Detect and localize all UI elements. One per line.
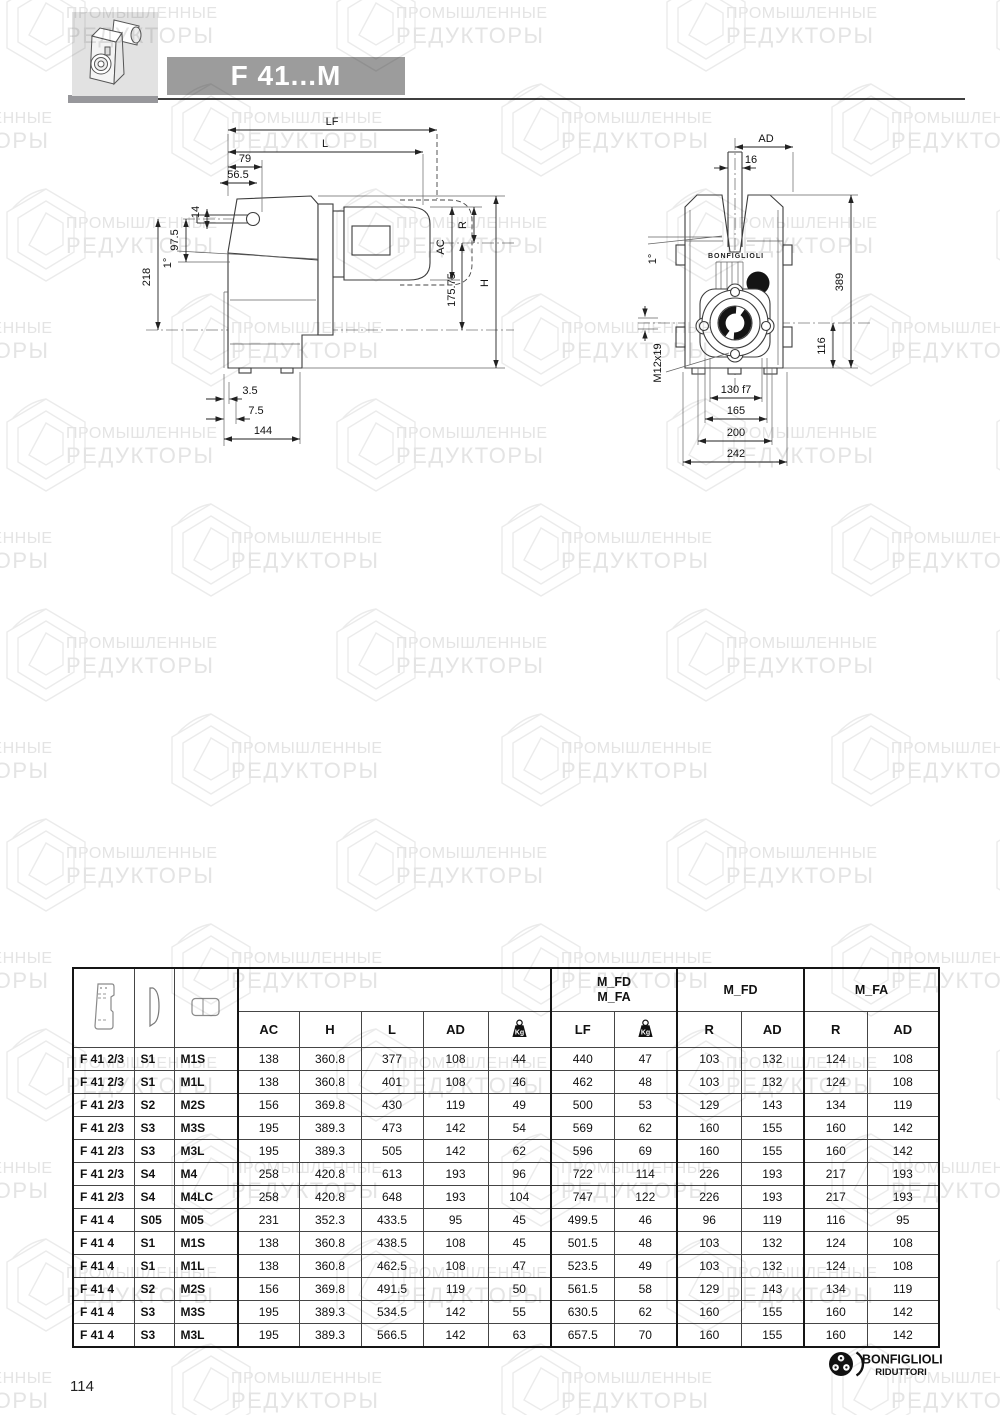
table-header-groups: M_FD M_FA M_FD M_FA bbox=[73, 968, 939, 1012]
cell-h: 420.8 bbox=[299, 1186, 361, 1209]
table-row: F 41 4S05M05231352.3433.59545499.5469611… bbox=[73, 1209, 939, 1232]
watermark: ПРОМЫШЛЕННЫЕРЕДУКТОРЫ bbox=[990, 605, 1000, 705]
table-row: F 41 2/3S1M1L138360.84011084646248103132… bbox=[73, 1071, 939, 1094]
cell-model: F 41 2/3 bbox=[73, 1186, 134, 1209]
dim-130f7: 130 f7 bbox=[721, 384, 752, 396]
cell-lf: 657.5 bbox=[551, 1324, 614, 1348]
dim-144: 144 bbox=[254, 425, 272, 437]
cell-ac: 138 bbox=[238, 1071, 299, 1094]
cell-m: M1S bbox=[174, 1048, 238, 1071]
table-row: F 41 2/3S3M3S195389.34731425456962160155… bbox=[73, 1117, 939, 1140]
watermark-hex-icon bbox=[990, 816, 1000, 914]
cell-h: 389.3 bbox=[299, 1117, 361, 1140]
cell-ad_fd: 155 bbox=[741, 1324, 804, 1348]
spec-table-container: M_FD M_FA M_FD M_FA AC H L AD bbox=[72, 967, 940, 1348]
watermark: ПРОМЫШЛЕННЫЕРЕДУКТОРЫ bbox=[660, 0, 980, 75]
dim-ac: AC bbox=[435, 239, 447, 254]
bonfiglioli-logo: BONFIGLIOLI RIDUTTORI bbox=[824, 1346, 949, 1382]
body-brand-text: BONFIGLIOLI bbox=[708, 253, 764, 260]
watermark-text: ПРОМЫШЛЕННЫЕРЕДУКТОРЫ bbox=[396, 841, 548, 889]
watermark-text: ПРОМЫШЛЕННЫЕРЕДУКТОРЫ bbox=[561, 736, 713, 784]
col-header-ad-fa: AD bbox=[867, 1012, 939, 1048]
cell-ad_fd: 193 bbox=[741, 1186, 804, 1209]
watermark-hex-icon bbox=[165, 501, 257, 599]
cell-r_fd: 103 bbox=[677, 1232, 741, 1255]
cell-ad: 95 bbox=[423, 1209, 488, 1232]
cell-kg2: 48 bbox=[614, 1071, 677, 1094]
cell-lf: 501.5 bbox=[551, 1232, 614, 1255]
cell-l: 377 bbox=[361, 1048, 423, 1071]
cell-s: S05 bbox=[134, 1209, 174, 1232]
cell-ad_fa: 193 bbox=[867, 1186, 939, 1209]
dim-3-5: 3.5 bbox=[242, 385, 257, 397]
table-row: F 41 4S3M3L195389.3566.514263657.5701601… bbox=[73, 1324, 939, 1348]
cell-kg: 45 bbox=[488, 1232, 551, 1255]
dim-218: 218 bbox=[141, 268, 153, 286]
cell-kg: 63 bbox=[488, 1324, 551, 1348]
watermark-text: ПРОМЫШЛЕННЫЕРЕДУКТОРЫ bbox=[231, 736, 383, 784]
cell-ad_fa: 142 bbox=[867, 1301, 939, 1324]
cell-ad_fd: 155 bbox=[741, 1301, 804, 1324]
cell-lf: 440 bbox=[551, 1048, 614, 1071]
watermark-hex-icon bbox=[0, 396, 92, 494]
page-title-text: F 41...M bbox=[231, 60, 342, 91]
col-header-r-fd: R bbox=[677, 1012, 741, 1048]
cell-s: S1 bbox=[134, 1232, 174, 1255]
cell-kg2: 69 bbox=[614, 1140, 677, 1163]
cell-r_fd: 226 bbox=[677, 1186, 741, 1209]
table-row: F 41 2/3S1M1S138360.83771084444047103132… bbox=[73, 1048, 939, 1071]
logo-brand-subtext: RIDUTTORI bbox=[875, 1367, 927, 1378]
cell-ac: 156 bbox=[238, 1094, 299, 1117]
watermark-text: ПРОМЫШЛЕННЫЕРЕДУКТОРЫ bbox=[66, 631, 218, 679]
watermark-text: ПРОМЫШЛЕННЫЕРЕДУКТОРЫ bbox=[0, 1366, 53, 1414]
watermark: ПРОМЫШЛЕННЫЕРЕДУКТОРЫ bbox=[0, 815, 320, 915]
cell-m: M2S bbox=[174, 1094, 238, 1117]
watermark: ПРОМЫШЛЕННЫЕРЕДУКТОРЫ bbox=[495, 710, 815, 810]
dim-m12x19: M12x19 bbox=[652, 343, 664, 382]
cell-ad_fa: 108 bbox=[867, 1048, 939, 1071]
cell-ad_fd: 132 bbox=[741, 1255, 804, 1278]
cell-h: 389.3 bbox=[299, 1301, 361, 1324]
group-label-mfa: M_FA bbox=[552, 990, 676, 1005]
cell-ad: 108 bbox=[423, 1071, 488, 1094]
watermark: ПРОМЫШЛЕННЫЕРЕДУКТОРЫ bbox=[990, 185, 1000, 285]
cell-h: 360.8 bbox=[299, 1071, 361, 1094]
watermark-hex-icon bbox=[990, 0, 1000, 74]
cell-kg: 55 bbox=[488, 1301, 551, 1324]
cell-l: 473 bbox=[361, 1117, 423, 1140]
watermark-text: ПРОМЫШЛЕННЫЕРЕДУКТОРЫ bbox=[0, 1156, 53, 1204]
spec-table-body: F 41 2/3S1M1S138360.83771084444047103132… bbox=[73, 1048, 939, 1348]
dim-389: 389 bbox=[834, 273, 846, 291]
cell-r_fd: 129 bbox=[677, 1278, 741, 1301]
cell-s: S1 bbox=[134, 1255, 174, 1278]
cell-ad_fd: 155 bbox=[741, 1140, 804, 1163]
cell-ad_fd: 143 bbox=[741, 1094, 804, 1117]
cell-ad: 119 bbox=[423, 1278, 488, 1301]
cell-m: M3S bbox=[174, 1117, 238, 1140]
col-header-kg: Kg bbox=[488, 1012, 551, 1048]
col-header-l: L bbox=[361, 1012, 423, 1048]
cell-l: 430 bbox=[361, 1094, 423, 1117]
watermark-text: ПРОМЫШЛЕННЫЕРЕДУКТОРЫ bbox=[726, 1, 878, 49]
cell-ac: 195 bbox=[238, 1117, 299, 1140]
cell-ac: 258 bbox=[238, 1163, 299, 1186]
output-shaft-icon bbox=[146, 986, 162, 1028]
cell-kg: 104 bbox=[488, 1186, 551, 1209]
dim-56-5: 56.5 bbox=[227, 169, 248, 181]
cell-lf: 523.5 bbox=[551, 1255, 614, 1278]
cell-l: 613 bbox=[361, 1163, 423, 1186]
cell-ad: 108 bbox=[423, 1048, 488, 1071]
dim-200: 200 bbox=[727, 427, 745, 439]
gearbox-thumbnail bbox=[72, 12, 158, 96]
cell-s: S4 bbox=[134, 1186, 174, 1209]
cell-r_fa: 124 bbox=[804, 1071, 867, 1094]
cell-lf: 630.5 bbox=[551, 1301, 614, 1324]
cell-ad_fd: 143 bbox=[741, 1278, 804, 1301]
header-group-mfa: M_FA bbox=[804, 968, 939, 1012]
dim-lf: LF bbox=[326, 116, 339, 128]
dim-7-5: 7.5 bbox=[248, 405, 263, 417]
watermark-hex-icon bbox=[0, 606, 92, 704]
cell-ad: 142 bbox=[423, 1324, 488, 1348]
cell-kg: 46 bbox=[488, 1071, 551, 1094]
cell-l: 534.5 bbox=[361, 1301, 423, 1324]
watermark-text: ПРОМЫШЛЕННЫЕРЕДУКТОРЫ bbox=[726, 841, 878, 889]
cell-ad: 108 bbox=[423, 1232, 488, 1255]
cell-r_fd: 96 bbox=[677, 1209, 741, 1232]
watermark-text: ПРОМЫШЛЕННЫЕРЕДУКТОРЫ bbox=[231, 526, 383, 574]
front-view-drawing: BONFIGLIOLI AD bbox=[615, 110, 980, 475]
dim-angle: 1° bbox=[647, 254, 659, 265]
watermark-text: ПРОМЫШЛЕННЫЕРЕДУКТОРЫ bbox=[891, 526, 1000, 574]
cell-kg: 54 bbox=[488, 1117, 551, 1140]
cell-ad_fa: 142 bbox=[867, 1140, 939, 1163]
cell-kg2: 114 bbox=[614, 1163, 677, 1186]
dim-angle: 1° bbox=[162, 258, 174, 269]
cell-lf: 596 bbox=[551, 1140, 614, 1163]
cell-kg2: 47 bbox=[614, 1048, 677, 1071]
gearbox-body bbox=[177, 134, 472, 373]
gearbox-column-icon bbox=[73, 968, 134, 1048]
cell-l: 462.5 bbox=[361, 1255, 423, 1278]
watermark-hex-icon bbox=[165, 1341, 257, 1415]
cell-m: M1L bbox=[174, 1255, 238, 1278]
watermark: ПРОМЫШЛЕННЫЕРЕДУКТОРЫ bbox=[990, 1025, 1000, 1125]
header-icon-bar bbox=[68, 95, 158, 103]
cell-kg2: 58 bbox=[614, 1278, 677, 1301]
cell-model: F 41 2/3 bbox=[73, 1117, 134, 1140]
cell-kg2: 46 bbox=[614, 1209, 677, 1232]
cell-h: 360.8 bbox=[299, 1048, 361, 1071]
cell-ad_fd: 132 bbox=[741, 1071, 804, 1094]
table-row: F 41 4S1M1L138360.8462.510847523.5491031… bbox=[73, 1255, 939, 1278]
cell-r_fa: 160 bbox=[804, 1117, 867, 1140]
watermark: ПРОМЫШЛЕННЫЕРЕДУКТОРЫ bbox=[825, 500, 1000, 600]
watermark-hex-icon bbox=[495, 501, 587, 599]
watermark-text: ПРОМЫШЛЕННЫЕРЕДУКТОРЫ bbox=[0, 106, 53, 154]
col-header-ad-fd: AD bbox=[741, 1012, 804, 1048]
watermark: ПРОМЫШЛЕННЫЕРЕДУКТОРЫ bbox=[0, 605, 320, 705]
table-row: F 41 2/3S4M4258420.861319396722114226193… bbox=[73, 1163, 939, 1186]
cell-r_fd: 103 bbox=[677, 1048, 741, 1071]
cell-ac: 231 bbox=[238, 1209, 299, 1232]
cell-m: M2S bbox=[174, 1278, 238, 1301]
watermark-text: ПРОМЫШЛЕННЫЕРЕДУКТОРЫ bbox=[891, 736, 1000, 784]
col-header-kg2: Kg bbox=[614, 1012, 677, 1048]
watermark-hex-icon bbox=[495, 711, 587, 809]
cell-ad_fd: 193 bbox=[741, 1163, 804, 1186]
side-view-drawing: LF L 79 56.5 14 97.5 218 1° 3.5 7.5 144 … bbox=[140, 105, 545, 450]
dim-l: L bbox=[322, 138, 328, 150]
watermark-hex-icon bbox=[990, 606, 1000, 704]
cell-ad_fd: 132 bbox=[741, 1048, 804, 1071]
cell-s: S3 bbox=[134, 1117, 174, 1140]
cell-kg: 49 bbox=[488, 1094, 551, 1117]
cell-r_fa: 217 bbox=[804, 1163, 867, 1186]
cell-m: M1L bbox=[174, 1071, 238, 1094]
cell-l: 648 bbox=[361, 1186, 423, 1209]
cell-s: S3 bbox=[134, 1324, 174, 1348]
cell-ac: 138 bbox=[238, 1255, 299, 1278]
motor-column-icon bbox=[174, 968, 238, 1048]
watermark: ПРОМЫШЛЕННЫЕРЕДУКТОРЫ bbox=[990, 0, 1000, 75]
cell-r_fa: 160 bbox=[804, 1324, 867, 1348]
cell-model: F 41 2/3 bbox=[73, 1071, 134, 1094]
watermark: ПРОМЫШЛЕННЫЕРЕДУКТОРЫ bbox=[0, 710, 155, 810]
header-group-mfd-mfa: M_FD M_FA bbox=[551, 968, 677, 1012]
watermark-hex-icon bbox=[0, 186, 92, 284]
watermark-text: ПРОМЫШЛЕННЫЕРЕДУКТОРЫ bbox=[66, 841, 218, 889]
watermark-hex-icon bbox=[660, 606, 752, 704]
cell-ac: 138 bbox=[238, 1048, 299, 1071]
table-row: F 41 4S2M2S156369.8491.511950561.5581291… bbox=[73, 1278, 939, 1301]
cell-m: M3L bbox=[174, 1140, 238, 1163]
cell-r_fd: 160 bbox=[677, 1324, 741, 1348]
cell-m: M4 bbox=[174, 1163, 238, 1186]
watermark: ПРОМЫШЛЕННЫЕРЕДУКТОРЫ bbox=[990, 395, 1000, 495]
cell-ac: 156 bbox=[238, 1278, 299, 1301]
cell-ad: 142 bbox=[423, 1140, 488, 1163]
watermark-text: ПРОМЫШЛЕННЫЕРЕДУКТОРЫ bbox=[0, 736, 53, 784]
cell-r_fa: 134 bbox=[804, 1094, 867, 1117]
watermark-hex-icon bbox=[330, 816, 422, 914]
cell-ad_fa: 108 bbox=[867, 1232, 939, 1255]
cell-r_fa: 124 bbox=[804, 1255, 867, 1278]
cell-model: F 41 2/3 bbox=[73, 1140, 134, 1163]
header-group-mfd: M_FD bbox=[677, 968, 804, 1012]
cell-ac: 258 bbox=[238, 1186, 299, 1209]
cell-s: S3 bbox=[134, 1301, 174, 1324]
cell-l: 491.5 bbox=[361, 1278, 423, 1301]
cell-ad: 142 bbox=[423, 1117, 488, 1140]
cell-r_fa: 217 bbox=[804, 1186, 867, 1209]
cell-h: 360.8 bbox=[299, 1232, 361, 1255]
watermark-hex-icon bbox=[660, 816, 752, 914]
watermark: ПРОМЫШЛЕННЫЕРЕДУКТОРЫ bbox=[330, 605, 650, 705]
cell-ac: 138 bbox=[238, 1232, 299, 1255]
watermark-text: ПРОМЫШЛЕННЫЕРЕДУКТОРЫ bbox=[726, 631, 878, 679]
spec-table: M_FD M_FA M_FD M_FA AC H L AD bbox=[72, 967, 940, 1348]
table-row: F 41 4S3M3S195389.3534.514255630.5621601… bbox=[73, 1301, 939, 1324]
cell-model: F 41 4 bbox=[73, 1209, 134, 1232]
cell-ad_fd: 132 bbox=[741, 1232, 804, 1255]
cell-ad_fd: 119 bbox=[741, 1209, 804, 1232]
cell-kg: 44 bbox=[488, 1048, 551, 1071]
table-row: F 41 4S1M1S138360.8438.510845501.5481031… bbox=[73, 1232, 939, 1255]
cell-h: 369.8 bbox=[299, 1278, 361, 1301]
cell-lf: 499.5 bbox=[551, 1209, 614, 1232]
cell-l: 433.5 bbox=[361, 1209, 423, 1232]
watermark: ПРОМЫШЛЕННЫЕРЕДУКТОРЫ bbox=[990, 815, 1000, 915]
page-number: 114 bbox=[70, 1378, 94, 1395]
cell-r_fd: 103 bbox=[677, 1255, 741, 1278]
cell-s: S3 bbox=[134, 1140, 174, 1163]
table-row: F 41 2/3S4M4LC258420.8648193104747122226… bbox=[73, 1186, 939, 1209]
cell-r_fa: 124 bbox=[804, 1232, 867, 1255]
cell-kg2: 49 bbox=[614, 1255, 677, 1278]
cell-model: F 41 2/3 bbox=[73, 1048, 134, 1071]
cell-r_fd: 160 bbox=[677, 1301, 741, 1324]
cell-lf: 569 bbox=[551, 1117, 614, 1140]
cell-s: S1 bbox=[134, 1048, 174, 1071]
cell-ad_fa: 108 bbox=[867, 1255, 939, 1278]
cell-ac: 195 bbox=[238, 1140, 299, 1163]
cell-s: S1 bbox=[134, 1071, 174, 1094]
cell-model: F 41 4 bbox=[73, 1278, 134, 1301]
watermark: ПРОМЫШЛЕННЫЕРЕДУКТОРЫ bbox=[495, 500, 815, 600]
cell-ad_fa: 119 bbox=[867, 1094, 939, 1117]
weight-kg-icon: Kg bbox=[511, 1019, 528, 1038]
cell-s: S4 bbox=[134, 1163, 174, 1186]
cell-ad: 119 bbox=[423, 1094, 488, 1117]
cell-m: M3L bbox=[174, 1324, 238, 1348]
cell-model: F 41 4 bbox=[73, 1301, 134, 1324]
watermark-text: ПРОМЫШЛЕННЫЕРЕДУКТОРЫ bbox=[561, 1366, 713, 1414]
cell-ac: 195 bbox=[238, 1301, 299, 1324]
watermark: ПРОМЫШЛЕННЫЕРЕДУКТОРЫ bbox=[495, 1340, 815, 1415]
col-header-ad: AD bbox=[423, 1012, 488, 1048]
cell-ad: 193 bbox=[423, 1186, 488, 1209]
gearbox-body: BONFIGLIOLI bbox=[638, 152, 792, 374]
watermark: ПРОМЫШЛЕННЫЕРЕДУКТОРЫ bbox=[0, 500, 155, 600]
watermark-hex-icon bbox=[990, 396, 1000, 494]
cell-lf: 747 bbox=[551, 1186, 614, 1209]
watermark-text: ПРОМЫШЛЕННЫЕРЕДУКТОРЫ bbox=[396, 1, 548, 49]
watermark: ПРОМЫШЛЕННЫЕРЕДУКТОРЫ bbox=[165, 1340, 485, 1415]
col-header-lf: LF bbox=[551, 1012, 614, 1048]
dim-h: H bbox=[479, 279, 491, 287]
dim-ad: AD bbox=[758, 133, 773, 145]
cell-ad_fa: 142 bbox=[867, 1117, 939, 1140]
watermark-hex-icon bbox=[990, 186, 1000, 284]
dim-242: 242 bbox=[727, 448, 745, 460]
cell-m: M1S bbox=[174, 1232, 238, 1255]
watermark-hex-icon bbox=[165, 711, 257, 809]
dim-165: 165 bbox=[727, 405, 745, 417]
cell-ad: 108 bbox=[423, 1255, 488, 1278]
col-header-ac: AC bbox=[238, 1012, 299, 1048]
watermark-hex-icon bbox=[990, 1026, 1000, 1124]
cell-ad_fa: 142 bbox=[867, 1324, 939, 1348]
watermark: ПРОМЫШЛЕННЫЕРЕДУКТОРЫ bbox=[0, 290, 155, 390]
watermark-hex-icon bbox=[495, 1341, 587, 1415]
watermark: ПРОМЫШЛЕННЫЕРЕДУКТОРЫ bbox=[660, 815, 980, 915]
cell-ad_fa: 108 bbox=[867, 1071, 939, 1094]
cell-kg2: 48 bbox=[614, 1232, 677, 1255]
header-group-plain bbox=[238, 968, 551, 1012]
cell-s: S2 bbox=[134, 1278, 174, 1301]
cell-r_fd: 160 bbox=[677, 1117, 741, 1140]
cell-h: 352.3 bbox=[299, 1209, 361, 1232]
group-label-mfd: M_FD bbox=[552, 975, 676, 990]
cell-ad_fd: 155 bbox=[741, 1117, 804, 1140]
logo-brand-text: BONFIGLIOLI bbox=[862, 1353, 943, 1367]
cell-m: M4LC bbox=[174, 1186, 238, 1209]
cell-ad_fa: 95 bbox=[867, 1209, 939, 1232]
watermark-text: ПРОМЫШЛЕННЫЕРЕДУКТОРЫ bbox=[0, 526, 53, 574]
cell-model: F 41 4 bbox=[73, 1232, 134, 1255]
cell-s: S2 bbox=[134, 1094, 174, 1117]
dim-16: 16 bbox=[745, 154, 757, 166]
svg-text:Kg: Kg bbox=[515, 1029, 524, 1036]
watermark: ПРОМЫШЛЕННЫЕРЕДУКТОРЫ bbox=[165, 710, 485, 810]
cell-h: 389.3 bbox=[299, 1324, 361, 1348]
watermark-text: ПРОМЫШЛЕННЫЕРЕДУКТОРЫ bbox=[231, 1366, 383, 1414]
gearbox-icon bbox=[91, 982, 117, 1032]
cell-r_fd: 160 bbox=[677, 1140, 741, 1163]
cell-model: F 41 2/3 bbox=[73, 1094, 134, 1117]
dim-116: 116 bbox=[816, 337, 828, 355]
watermark-text: ПРОМЫШЛЕННЫЕРЕДУКТОРЫ bbox=[0, 946, 53, 994]
catalog-page: F 41...M bbox=[0, 0, 1000, 1415]
motor-icon bbox=[190, 995, 222, 1019]
cell-r_fd: 129 bbox=[677, 1094, 741, 1117]
cell-lf: 462 bbox=[551, 1071, 614, 1094]
cell-model: F 41 4 bbox=[73, 1255, 134, 1278]
cell-r_fd: 226 bbox=[677, 1163, 741, 1186]
cell-h: 360.8 bbox=[299, 1255, 361, 1278]
cell-kg: 47 bbox=[488, 1255, 551, 1278]
cell-kg2: 62 bbox=[614, 1301, 677, 1324]
watermark: ПРОМЫШЛЕННЫЕРЕДУКТОРЫ bbox=[990, 1235, 1000, 1335]
cell-ad: 193 bbox=[423, 1163, 488, 1186]
weight-kg-icon: Kg bbox=[637, 1019, 654, 1038]
cell-ac: 195 bbox=[238, 1324, 299, 1348]
dim-79: 79 bbox=[239, 153, 251, 165]
table-row: F 41 2/3S2M2S156369.84301194950053129143… bbox=[73, 1094, 939, 1117]
watermark-text: ПРОМЫШЛЕННЫЕРЕДУКТОРЫ bbox=[396, 631, 548, 679]
table-row: F 41 2/3S3M3L195389.35051426259669160155… bbox=[73, 1140, 939, 1163]
dim-r: R bbox=[457, 221, 469, 229]
cell-ad_fa: 193 bbox=[867, 1163, 939, 1186]
cell-l: 401 bbox=[361, 1071, 423, 1094]
dim-14: 14 bbox=[190, 206, 202, 218]
watermark-text: ПРОМЫШЛЕННЫЕРЕДУКТОРЫ bbox=[561, 526, 713, 574]
watermark-hex-icon bbox=[0, 816, 92, 914]
dim-175-75: 175.75 bbox=[446, 273, 458, 307]
cell-r_fa: 160 bbox=[804, 1301, 867, 1324]
cell-lf: 722 bbox=[551, 1163, 614, 1186]
watermark-hex-icon bbox=[825, 501, 917, 599]
cell-h: 369.8 bbox=[299, 1094, 361, 1117]
cell-h: 420.8 bbox=[299, 1163, 361, 1186]
watermark-hex-icon bbox=[330, 606, 422, 704]
gearbox-thumbnail-icon bbox=[72, 12, 158, 96]
cell-kg2: 62 bbox=[614, 1117, 677, 1140]
